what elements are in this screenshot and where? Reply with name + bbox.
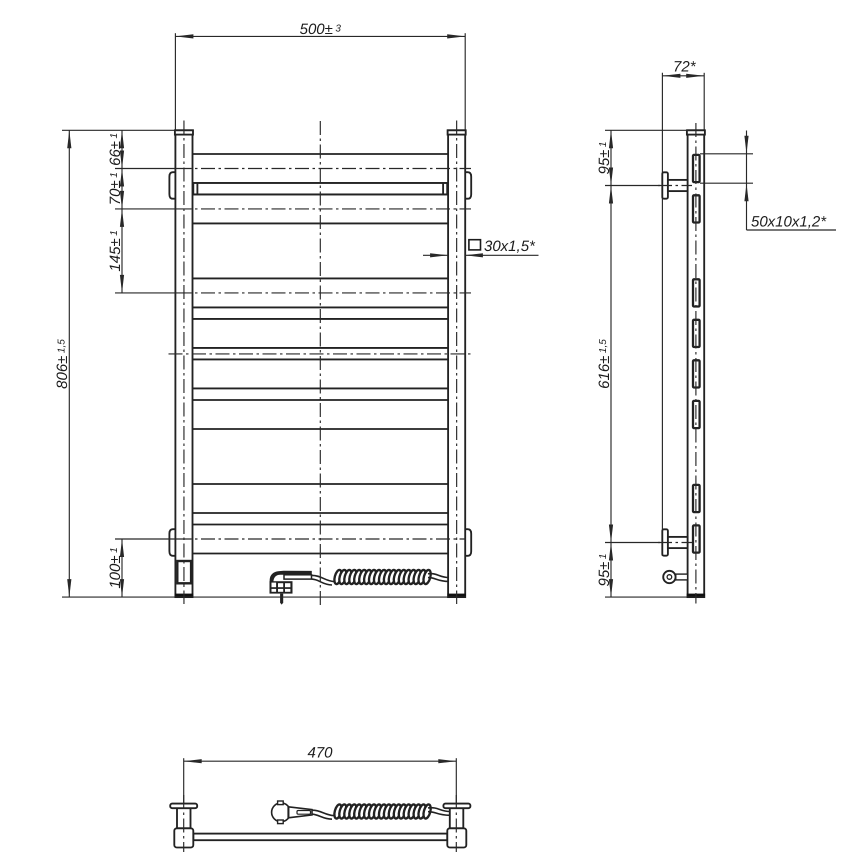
svg-text:470: 470 bbox=[307, 744, 333, 761]
svg-text:50x10x1,2*: 50x10x1,2* bbox=[751, 214, 827, 231]
svg-text:30x1,5*: 30x1,5* bbox=[484, 238, 536, 255]
svg-text:72*: 72* bbox=[673, 59, 697, 76]
